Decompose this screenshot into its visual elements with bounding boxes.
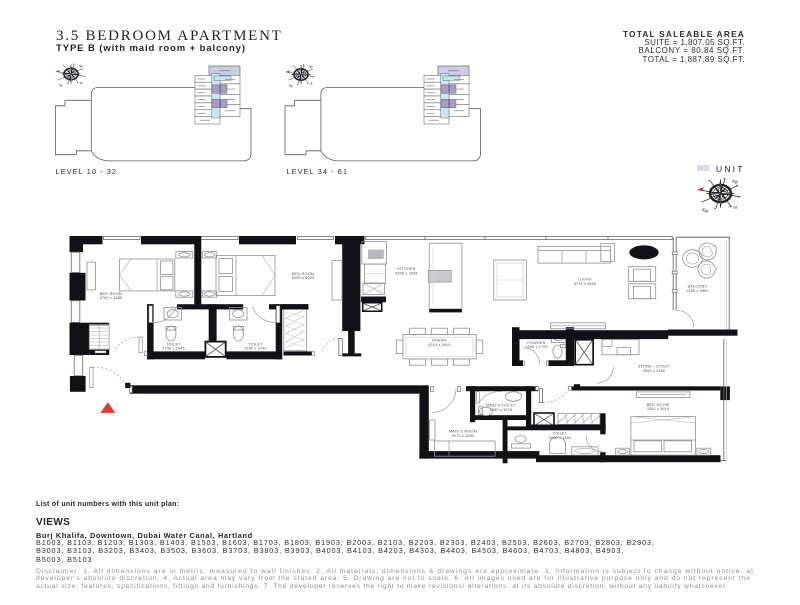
- svg-text:5775 x 4605: 5775 x 4605: [574, 282, 597, 286]
- svg-text:SE: SE: [733, 205, 738, 209]
- svg-text:2740 x 1645: 2740 x 1645: [162, 347, 185, 351]
- svg-text:2070 x 2090: 2070 x 2090: [452, 434, 475, 438]
- svg-text:SE: SE: [80, 83, 84, 85]
- svg-text:BALCONY: BALCONY: [688, 285, 708, 289]
- svg-text:DINING: DINING: [432, 339, 447, 343]
- svg-text:1640 x 2740: 1640 x 2740: [244, 347, 267, 351]
- svg-text:BED ROOM: BED ROOM: [647, 403, 669, 407]
- svg-text:MAID'S TOILET: MAID'S TOILET: [486, 404, 517, 408]
- svg-text:3200 x 3615: 3200 x 3615: [647, 407, 670, 411]
- svg-text:5700 x 3685: 5700 x 3685: [100, 296, 123, 300]
- svg-text:1450 x 4950: 1450 x 4950: [686, 289, 709, 293]
- svg-text:4310 x 3915: 4310 x 3915: [428, 343, 451, 347]
- svg-text:TOILET: TOILET: [166, 342, 181, 346]
- svg-text:TOILET: TOILET: [553, 432, 568, 436]
- svg-text:KITCHEN: KITCHEN: [397, 267, 415, 271]
- svg-text:LIVING: LIVING: [578, 278, 592, 282]
- svg-text:POWDER: POWDER: [527, 341, 545, 345]
- svg-text:2695 x 2480: 2695 x 2480: [643, 369, 666, 373]
- svg-text:BED ROOM: BED ROOM: [100, 292, 122, 296]
- svg-text:5900 x 4005: 5900 x 4005: [292, 276, 315, 280]
- svg-text:1560 x 1575: 1560 x 1575: [490, 408, 513, 412]
- svg-text:STORE / STUDY: STORE / STUDY: [638, 365, 670, 369]
- svg-text:TOILET: TOILET: [248, 342, 263, 346]
- svg-text:MAID'S ROOM: MAID'S ROOM: [449, 430, 477, 434]
- svg-text:SE: SE: [310, 83, 314, 85]
- svg-text:1395 x 1705: 1395 x 1705: [525, 345, 548, 349]
- svg-text:2695 x 3495: 2695 x 3495: [395, 272, 418, 276]
- svg-text:BED ROOM: BED ROOM: [292, 272, 314, 276]
- svg-text:2600 x 1450: 2600 x 1450: [549, 436, 572, 440]
